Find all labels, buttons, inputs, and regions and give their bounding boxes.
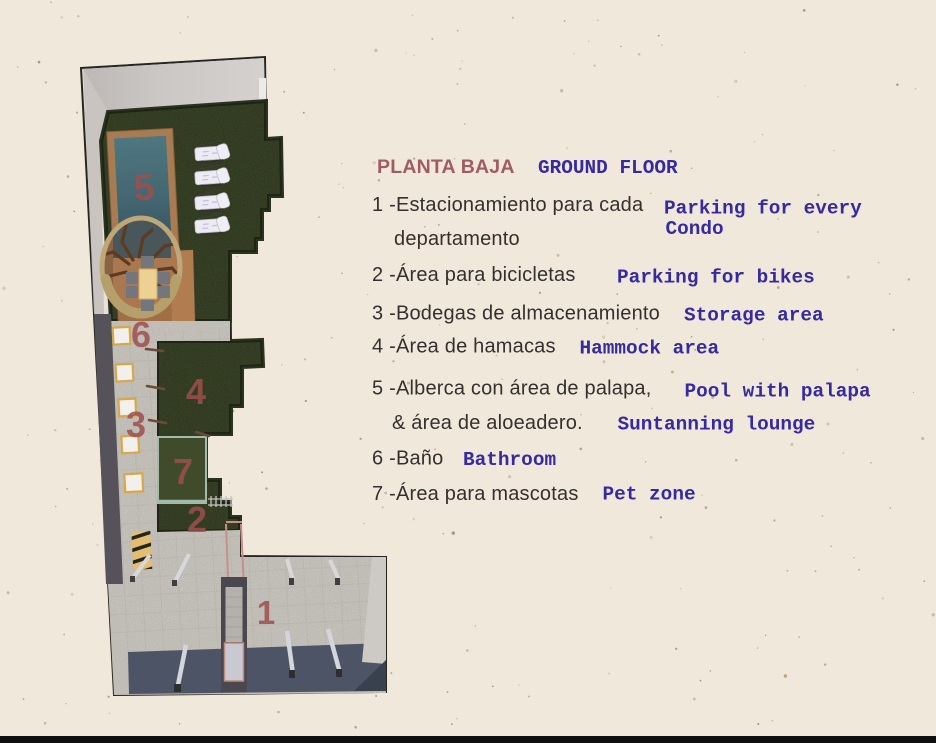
svg-text:GROUND FLOOR: GROUND FLOOR xyxy=(538,157,678,179)
svg-text:PLANTA BAJA: PLANTA BAJA xyxy=(377,156,515,178)
svg-text:7: 7 xyxy=(173,451,193,492)
svg-text:2 -Área para bicicletas: 2 -Área para bicicletas xyxy=(372,263,576,286)
svg-text:2: 2 xyxy=(187,499,207,540)
svg-text:& área de aloeadero.: & área de aloeadero. xyxy=(392,412,583,434)
svg-text:Pool with palapa: Pool with palapa xyxy=(685,380,872,402)
svg-text:4 -Área de hamacas: 4 -Área de hamacas xyxy=(372,335,556,358)
svg-text:Pet zone: Pet zone xyxy=(603,484,696,506)
svg-text:Hammock area: Hammock area xyxy=(580,338,720,360)
svg-text:3 -Bodegas de almacenamiento: 3 -Bodegas de almacenamiento xyxy=(372,303,660,325)
svg-text:3: 3 xyxy=(126,404,146,445)
svg-text:7 -Área para mascotas: 7 -Área para mascotas xyxy=(372,482,579,505)
svg-text:5: 5 xyxy=(133,166,156,208)
svg-text:6 -Baño: 6 -Baño xyxy=(372,447,443,469)
svg-text:Bathroom: Bathroom xyxy=(463,449,556,471)
svg-text:Parking for every: Parking for every xyxy=(664,198,862,220)
svg-text:1: 1 xyxy=(257,594,275,631)
svg-text:Condo: Condo xyxy=(666,218,724,240)
svg-text:5 -Alberca con área de palapa,: 5 -Alberca con área de palapa, xyxy=(372,377,652,399)
svg-text:departamento: departamento xyxy=(394,228,520,250)
svg-text:Suntanning lounge: Suntanning lounge xyxy=(618,414,816,436)
svg-text:6: 6 xyxy=(131,314,151,355)
svg-text:Storage area: Storage area xyxy=(684,305,824,327)
svg-text:1 -Estacionamiento para cada: 1 -Estacionamiento para cada xyxy=(372,194,644,216)
svg-text:4: 4 xyxy=(186,371,206,412)
svg-text:Parking for bikes: Parking for bikes xyxy=(617,267,815,289)
